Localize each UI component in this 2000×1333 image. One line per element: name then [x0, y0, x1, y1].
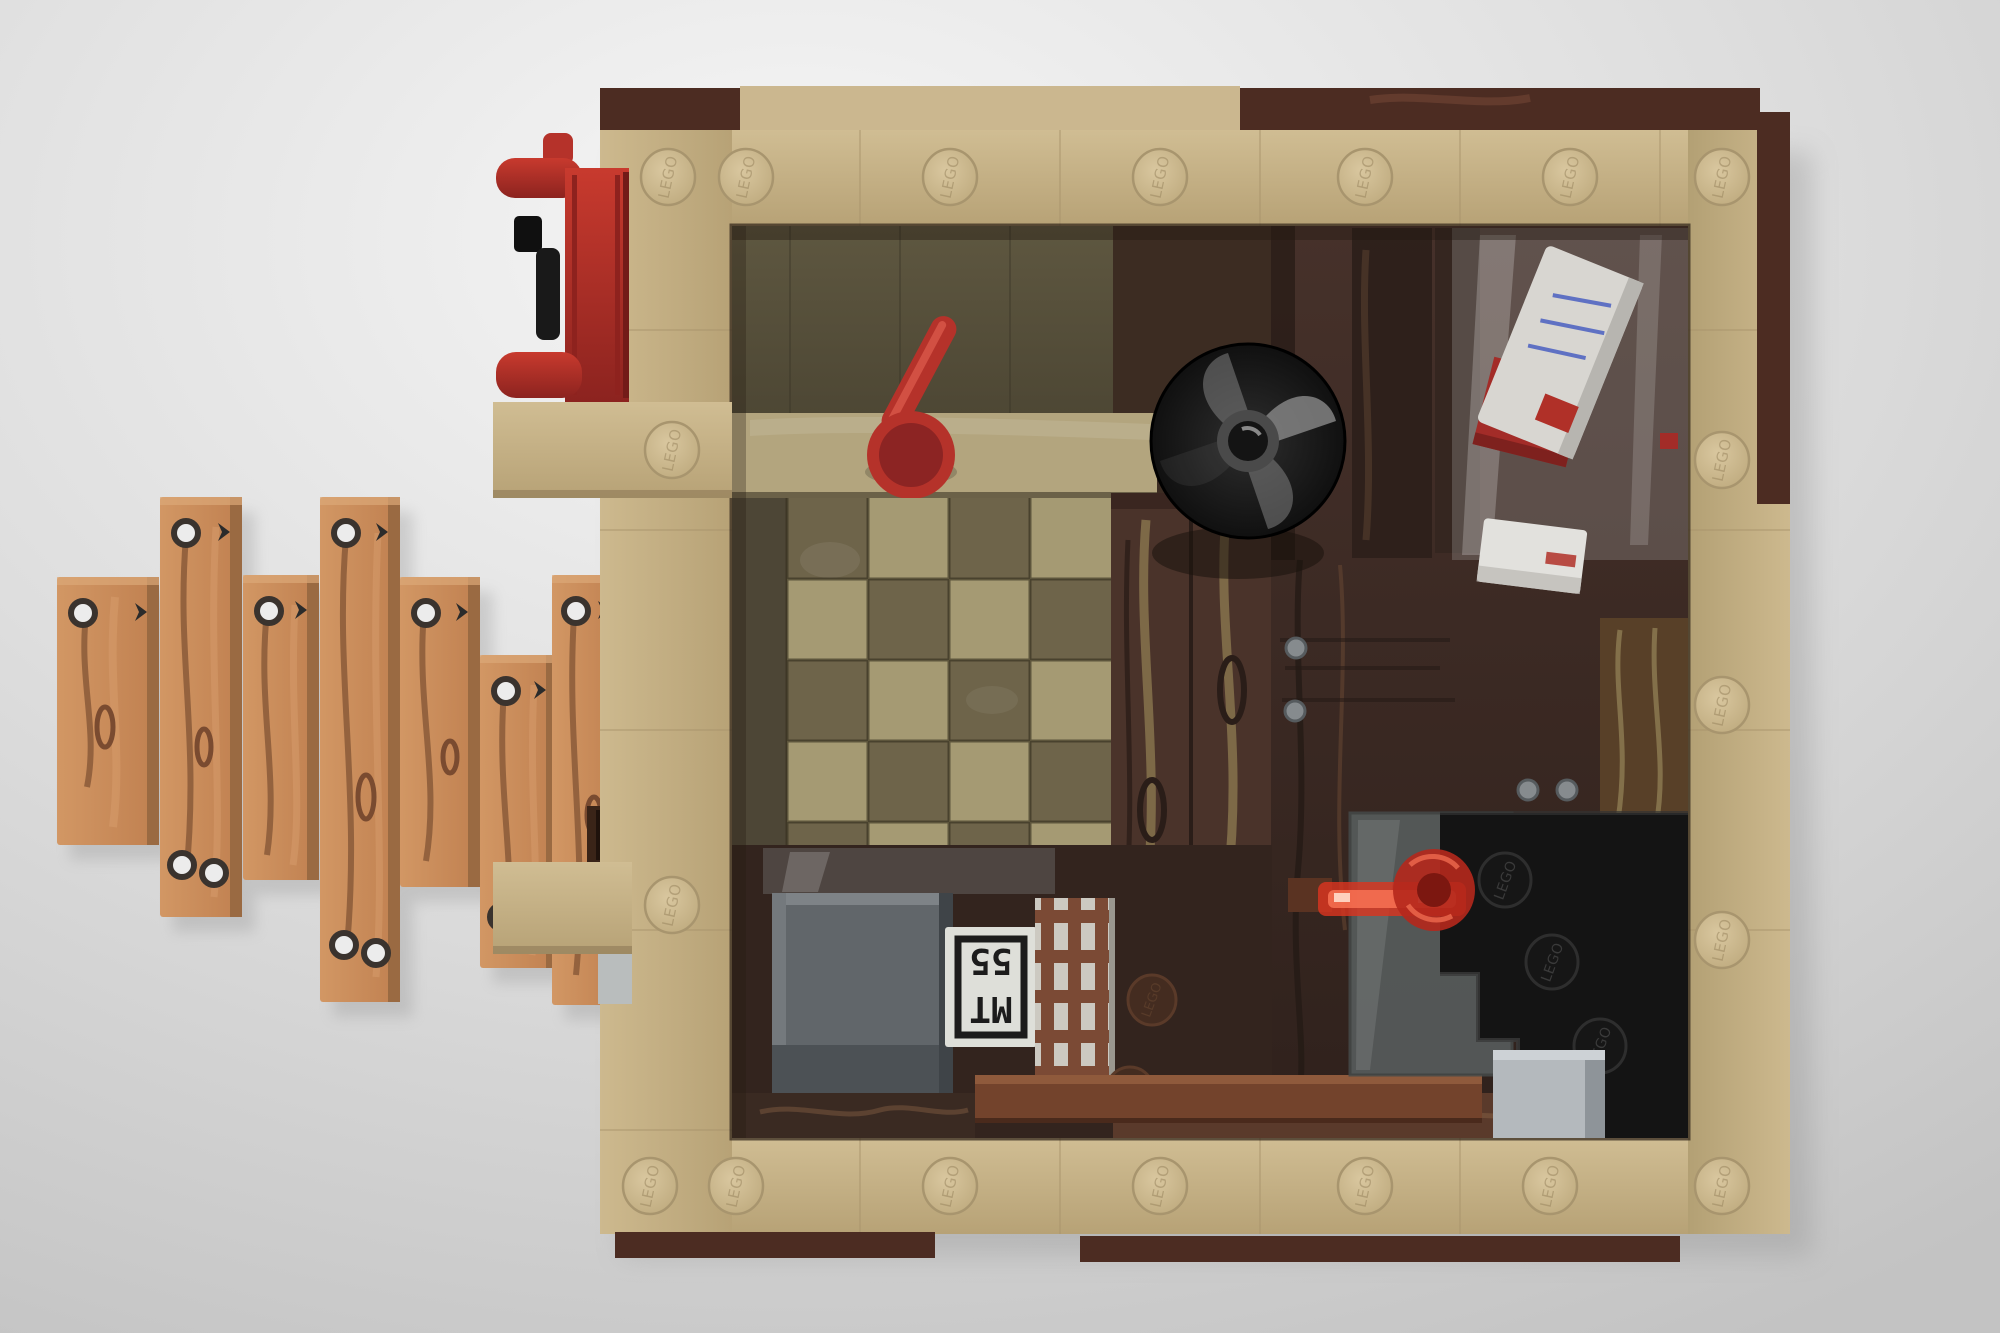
checker-floor	[732, 498, 1111, 890]
wood-plank	[160, 497, 242, 917]
mt55-crate-tile: MT 55	[945, 927, 1037, 1047]
pump-handle	[514, 216, 542, 252]
floor-stud	[1128, 975, 1176, 1025]
grain-plank	[1600, 618, 1688, 830]
mt55-print-line2: 55	[969, 940, 1012, 981]
inner-shadow-left	[732, 226, 746, 1138]
mt55-print-line1: MT	[969, 988, 1012, 1029]
knob-icon	[1518, 780, 1538, 800]
trim-brick	[600, 88, 740, 134]
gray-bracket	[598, 954, 632, 1004]
room-interior: MT 55	[732, 226, 1688, 1150]
knob-icon	[1286, 638, 1306, 658]
trim-brick	[1240, 88, 1760, 134]
bench	[975, 1075, 1482, 1123]
lego-render-stage: LEGO LEGO LEGO	[0, 0, 2000, 1333]
knob-icon	[1285, 701, 1305, 721]
nail-icon	[334, 521, 358, 545]
nail-icon	[332, 933, 356, 957]
wood-plank	[400, 577, 480, 887]
nail-icon	[564, 599, 588, 623]
wall-bottom	[600, 1138, 1790, 1234]
render-canvas: LEGO LEGO LEGO	[0, 0, 2000, 1333]
nail-icon	[257, 599, 281, 623]
nail-icon	[364, 941, 388, 965]
mug-opening	[879, 423, 943, 487]
nail-icon	[170, 853, 194, 877]
gray-step	[1493, 1050, 1605, 1138]
knob-icon	[1557, 780, 1577, 800]
nail-icon	[202, 861, 226, 885]
wood-plank	[57, 577, 159, 845]
inner-shadow-top	[732, 226, 1688, 240]
nail-icon	[71, 601, 95, 625]
stair-stud	[1479, 853, 1531, 907]
pump-arm-bottom	[496, 352, 582, 398]
wall-top	[600, 130, 1790, 226]
tan-parapet	[740, 86, 1240, 132]
outer-brown-strip	[615, 1232, 935, 1258]
outer-brown-strip	[1080, 1236, 1680, 1262]
wood-plank	[320, 497, 400, 1002]
envelope-rack	[1452, 228, 1688, 594]
gray-box	[772, 893, 953, 1103]
nail-icon	[174, 521, 198, 545]
red-chip	[1660, 433, 1678, 449]
pump-piston	[536, 248, 560, 340]
envelope-small	[1476, 518, 1587, 594]
lattice-fence	[1035, 898, 1115, 1078]
ledge-lower	[493, 862, 632, 954]
outer-trim-bricks	[600, 86, 1760, 134]
black-dish	[1151, 344, 1345, 579]
wood-plank	[243, 575, 319, 880]
stair-stud	[1526, 935, 1578, 989]
nail-icon	[494, 679, 518, 703]
nail-icon	[414, 601, 438, 625]
outer-brown-column	[1757, 112, 1790, 504]
